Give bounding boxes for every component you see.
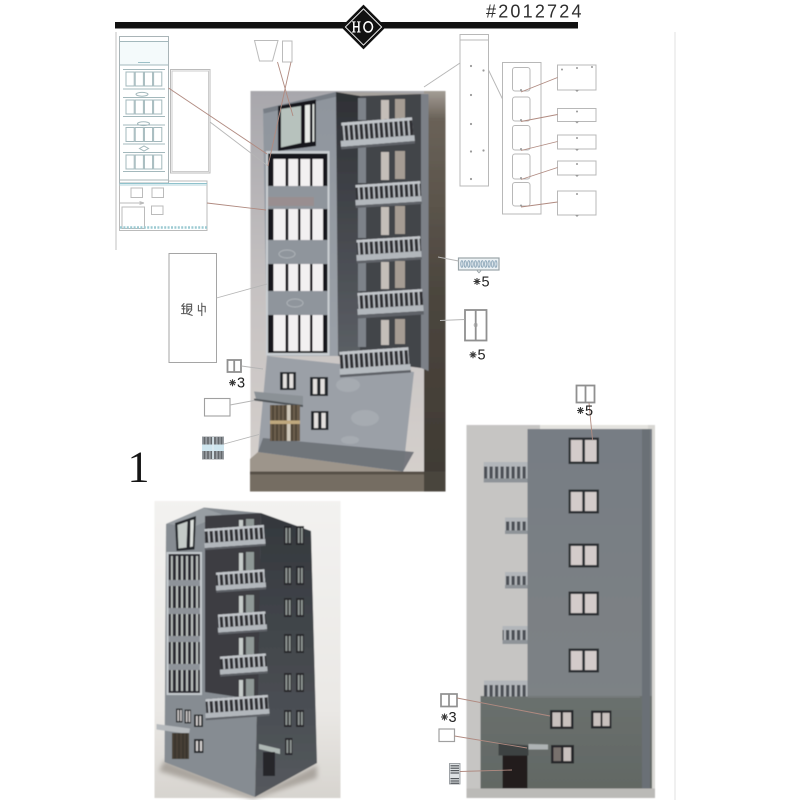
- svg-text:3: 3: [449, 710, 457, 726]
- svg-text:3: 3: [237, 376, 245, 392]
- svg-text:#2012724: #2012724: [486, 2, 584, 22]
- svg-text:5: 5: [585, 404, 593, 420]
- svg-text:1: 1: [128, 443, 150, 492]
- svg-text:5: 5: [482, 275, 490, 291]
- svg-text:5: 5: [478, 348, 486, 364]
